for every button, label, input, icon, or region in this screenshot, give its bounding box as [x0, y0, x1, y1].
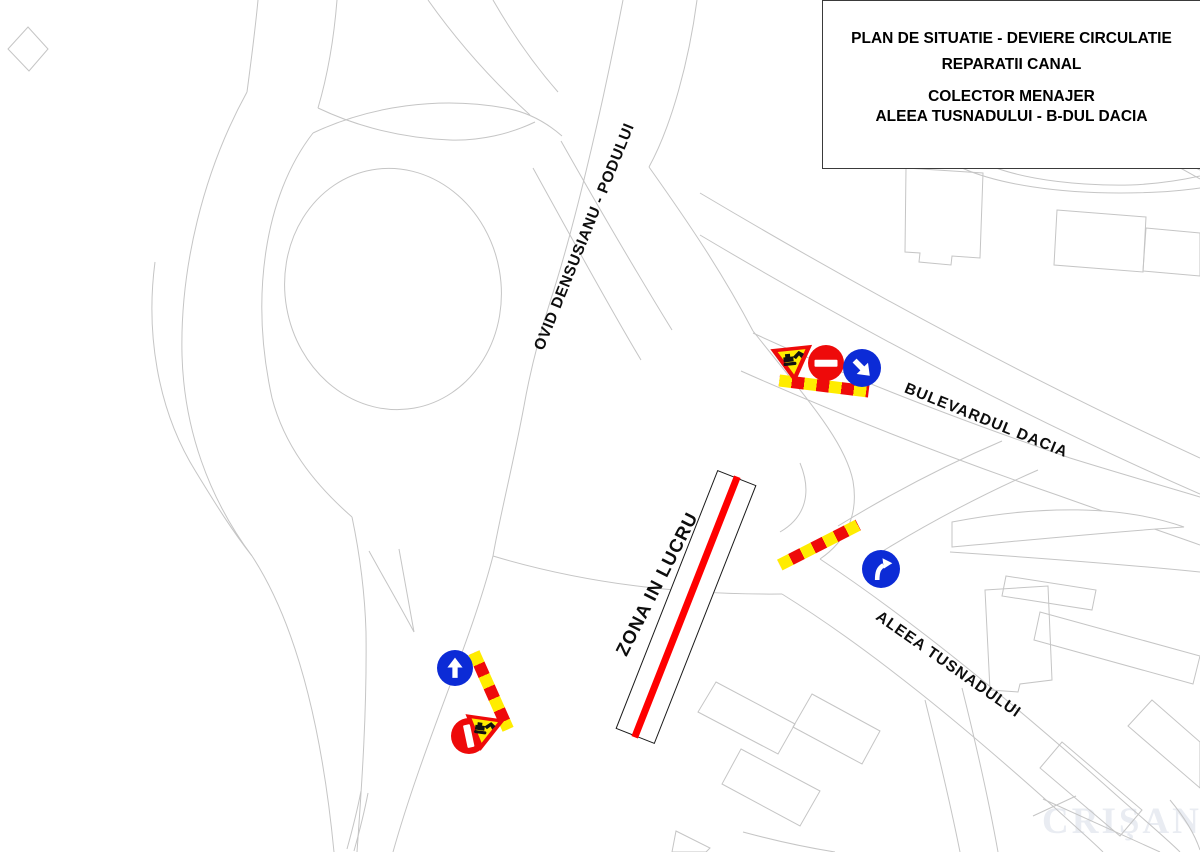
- plan-title-line-1: PLAN DE SITUATIE - DEVIERE CIRCULATIE: [823, 29, 1200, 48]
- plan-title-line-3: COLECTOR MENAJER: [823, 87, 1200, 106]
- plan-title-line-4: ALEEA TUSNADULUI - B-DUL DACIA: [823, 107, 1200, 126]
- straight-ahead-sign: [437, 650, 473, 686]
- mandatory-direction-down-right-sign: [843, 349, 881, 387]
- turn-right-ahead-sign: [862, 550, 900, 588]
- no-entry-bar-icon: [815, 360, 838, 367]
- no-entry-sign-dacia: [808, 345, 844, 381]
- plan-title-line-2: REPARATII CANAL: [823, 55, 1200, 74]
- title-block: PLAN DE SITUATIE - DEVIERE CIRCULATIE RE…: [822, 0, 1200, 169]
- arrow-down-right-icon: [844, 350, 880, 386]
- curved-right-arrow-icon: [863, 551, 899, 587]
- arrow-up-icon: [438, 651, 472, 685]
- roadworks-yield-sign-south: [458, 710, 507, 756]
- site-plan-canvas: CRIŞANA: [0, 0, 1200, 852]
